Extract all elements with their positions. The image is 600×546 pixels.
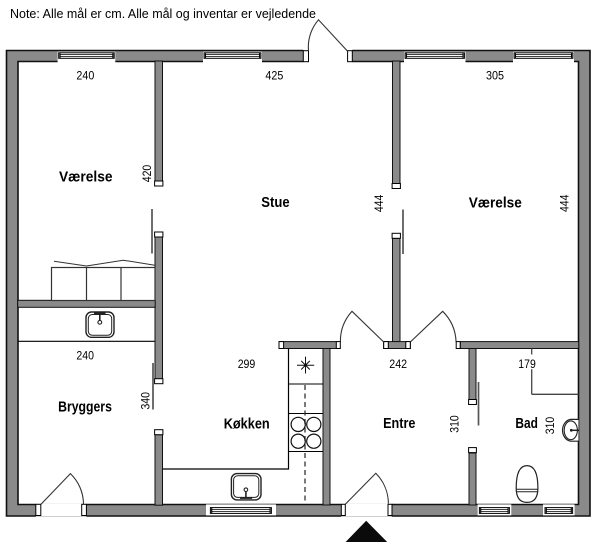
svg-text:310: 310	[543, 416, 557, 434]
svg-text:Bryggers: Bryggers	[58, 398, 112, 415]
svg-text:Værelse: Værelse	[59, 168, 113, 185]
svg-text:Note: Alle mål er cm. Alle mål: Note: Alle mål er cm. Alle mål og invent…	[10, 6, 316, 21]
svg-text:242: 242	[389, 357, 407, 371]
svg-text:Stue: Stue	[261, 194, 289, 211]
svg-text:Værelse: Værelse	[469, 194, 522, 211]
svg-text:340: 340	[138, 392, 152, 410]
svg-text:299: 299	[238, 357, 256, 371]
svg-text:Entre: Entre	[383, 415, 415, 432]
svg-text:444: 444	[372, 194, 386, 212]
svg-text:310: 310	[447, 415, 461, 433]
svg-text:420: 420	[140, 164, 154, 182]
svg-text:425: 425	[265, 69, 283, 83]
svg-text:240: 240	[76, 349, 94, 363]
svg-text:305: 305	[486, 69, 504, 83]
svg-text:Køkken: Køkken	[224, 416, 270, 433]
svg-text:179: 179	[518, 357, 536, 371]
svg-text:240: 240	[76, 69, 94, 83]
svg-text:444: 444	[557, 194, 571, 212]
svg-text:Bad: Bad	[515, 415, 538, 432]
